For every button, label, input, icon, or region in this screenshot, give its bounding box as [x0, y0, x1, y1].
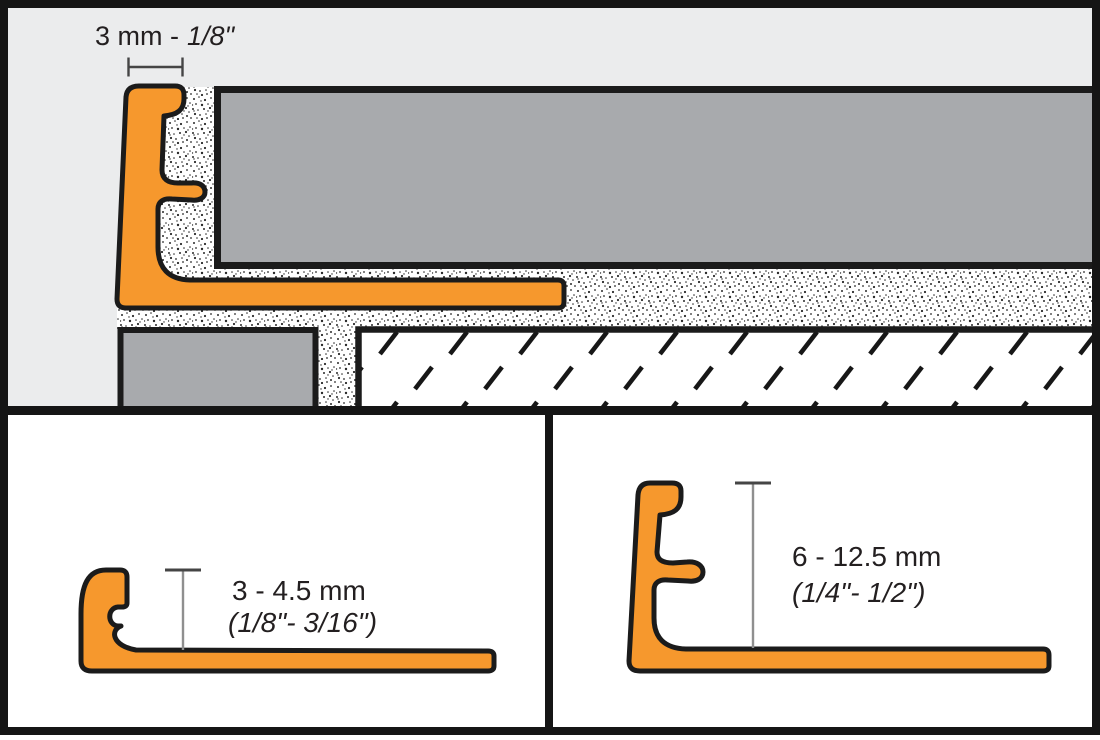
- diagram-page: 3 mm - 1/8" 3 - 4.5 mm (1/8"- 3/16") 6 -…: [0, 0, 1100, 735]
- size-label-metric: 6 - 12.5 mm: [792, 541, 941, 572]
- profile-diagram: 3 mm - 1/8" 3 - 4.5 mm (1/8"- 3/16") 6 -…: [0, 0, 1100, 735]
- size-label-imperial: (1/4"- 1/2"): [792, 577, 925, 608]
- tile: [218, 90, 1098, 266]
- size-label-metric: 3 - 4.5 mm: [232, 575, 366, 606]
- substrate: [359, 330, 1100, 415]
- profile-height-large-panel: 6 - 12.5 mm (1/4"- 1/2"): [553, 415, 1092, 727]
- profile-height-small-panel: 3 - 4.5 mm (1/8"- 3/16"): [8, 415, 545, 727]
- frame-bottom: [0, 727, 1100, 735]
- dimension-label-metric: 3 mm -: [95, 21, 179, 51]
- existing-covering-block: [121, 330, 316, 415]
- frame-top: [0, 0, 1100, 8]
- panel-background: [8, 415, 545, 727]
- frame-left: [0, 0, 8, 735]
- frame-right: [1092, 0, 1100, 735]
- installation-cross-section-panel: 3 mm - 1/8": [8, 8, 1100, 415]
- vertical-divider: [545, 406, 553, 735]
- dimension-label-imperial: 1/8": [187, 21, 236, 51]
- size-label-imperial: (1/8"- 3/16"): [228, 607, 377, 638]
- mortar-joint-strip: [315, 326, 361, 411]
